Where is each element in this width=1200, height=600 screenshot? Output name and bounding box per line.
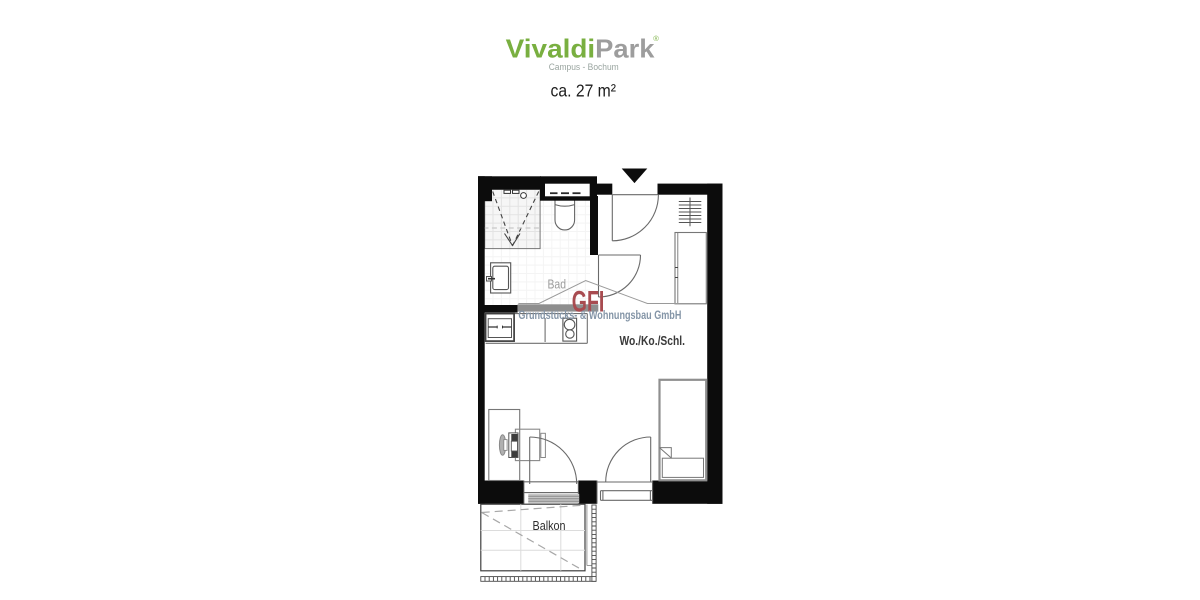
svg-text:®: ® — [653, 34, 659, 43]
svg-text:Vivaldi: Vivaldi — [506, 34, 596, 64]
svg-text:Campus - Bochum: Campus - Bochum — [549, 62, 619, 72]
svg-text:Balkon: Balkon — [533, 518, 566, 533]
svg-text:Park: Park — [595, 34, 655, 64]
svg-text:Bad: Bad — [548, 277, 567, 292]
svg-text:Grundstücks- & Wohnungsbau Gmb: Grundstücks- & Wohnungsbau GmbH — [518, 310, 681, 322]
svg-text:Wo./Ko./Schl.: Wo./Ko./Schl. — [620, 333, 686, 348]
svg-text:ca. 27 m²: ca. 27 m² — [551, 81, 617, 101]
